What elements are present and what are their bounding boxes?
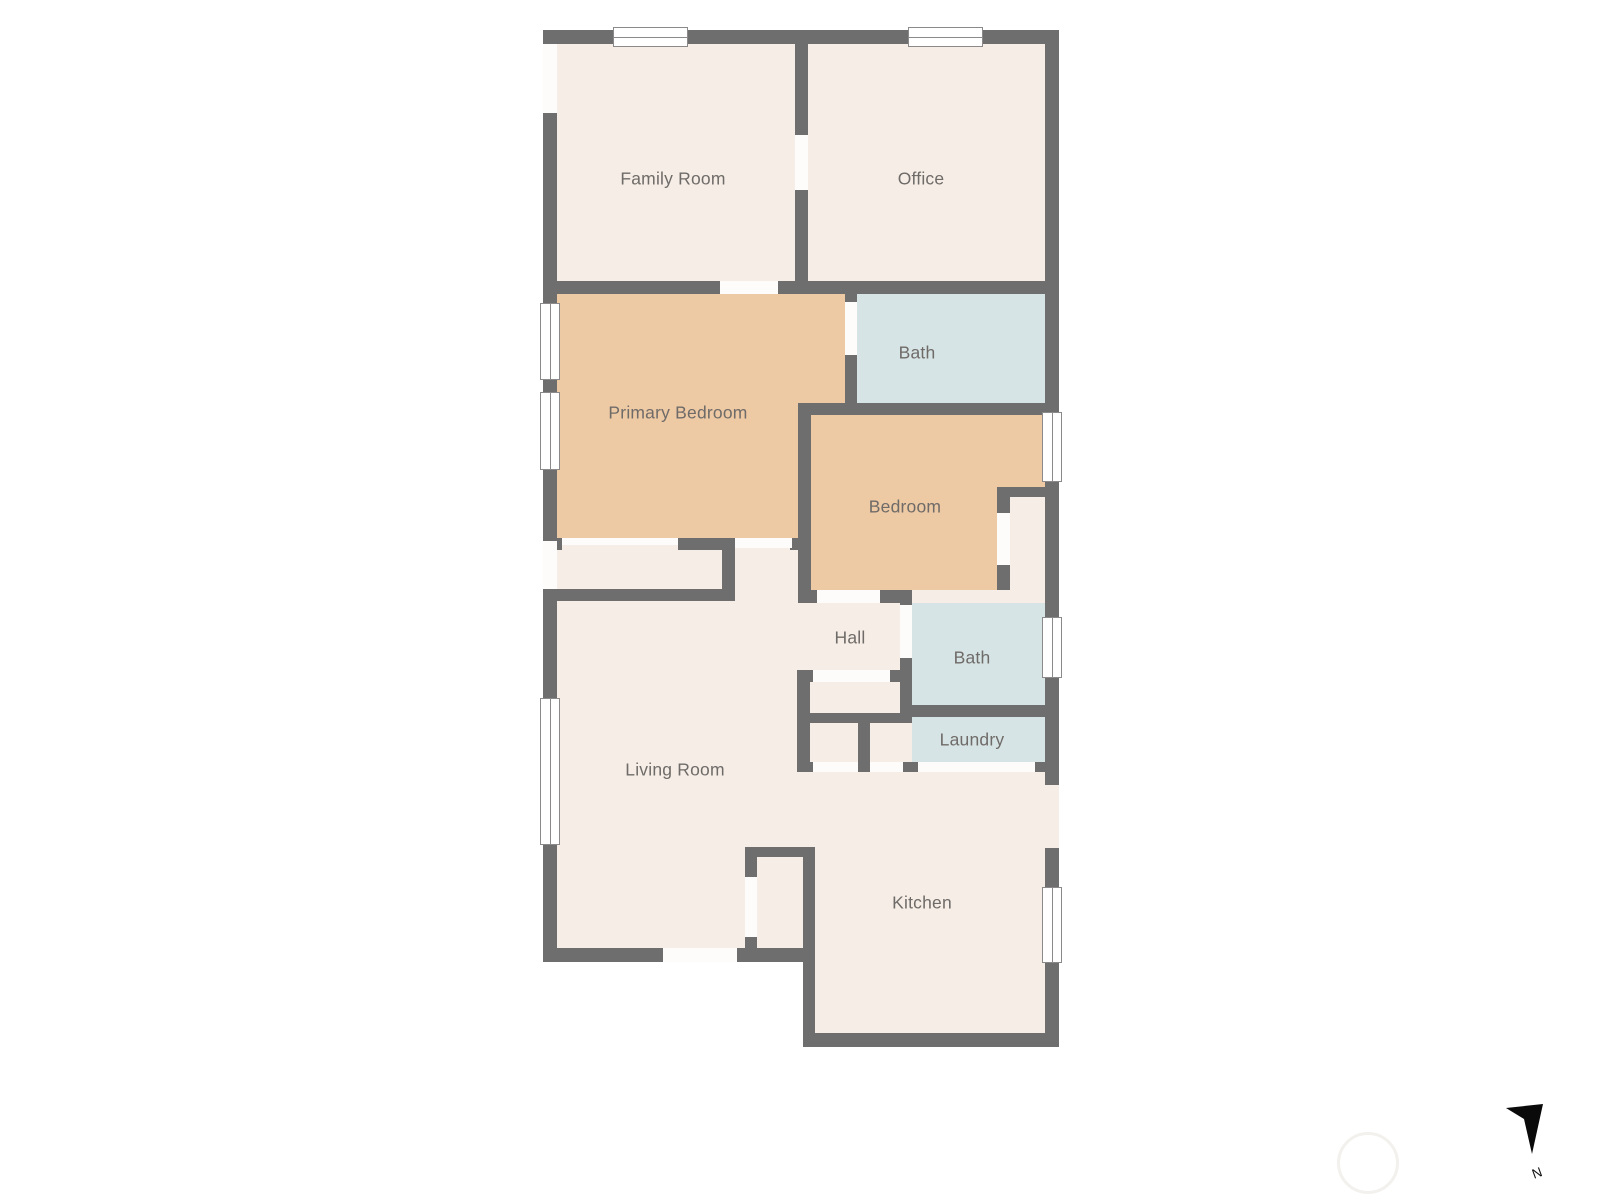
window-pane-line [614, 37, 687, 38]
room-label-bath-upper: Bath [899, 343, 936, 364]
room-label-bath-lower: Bath [954, 648, 991, 669]
door-opening [845, 302, 857, 355]
door-opening [813, 670, 890, 682]
window-pane-line [1052, 888, 1053, 962]
floor-plan: Family RoomOfficePrimary BedroomBathBedr… [0, 0, 1600, 1200]
door-opening [720, 281, 778, 294]
door-opening [795, 135, 808, 190]
window-pane-line [550, 699, 551, 844]
room-label-living-room: Living Room [625, 760, 724, 781]
room-label-hall: Hall [835, 628, 866, 649]
door-opening [663, 948, 737, 962]
window [1042, 887, 1062, 963]
wall [803, 847, 815, 1047]
door-opening [997, 513, 1010, 565]
watermark-circle [1337, 1132, 1399, 1194]
north-arrow-shape [1506, 1104, 1543, 1154]
door-opening [1045, 785, 1059, 848]
window [1042, 617, 1062, 678]
wall [900, 705, 1045, 717]
window-pane-line [550, 304, 551, 379]
floor-bath-upper [857, 294, 1045, 403]
wall [798, 403, 1045, 415]
window [908, 27, 983, 47]
room-label-primary-bedroom: Primary Bedroom [608, 403, 747, 424]
room-label-family-room: Family Room [620, 169, 725, 190]
door-opening [562, 538, 678, 545]
door-opening [543, 44, 557, 113]
window [540, 392, 560, 470]
window-pane-line [1052, 413, 1053, 481]
window [540, 303, 560, 380]
door-opening [735, 538, 792, 548]
door-opening [745, 877, 757, 937]
door-opening [813, 762, 858, 772]
window-pane-line [1052, 618, 1053, 677]
window [1042, 412, 1062, 482]
north-arrow-icon [1480, 1090, 1570, 1190]
wall [803, 1033, 1059, 1047]
room-label-office: Office [898, 169, 945, 190]
floor-plan-page: Family RoomOfficePrimary BedroomBathBedr… [0, 0, 1600, 1200]
wall [543, 589, 735, 601]
window-pane-line [909, 37, 982, 38]
wall [797, 713, 912, 723]
door-opening [543, 541, 557, 589]
room-label-bedroom: Bedroom [869, 497, 941, 518]
room-label-kitchen: Kitchen [892, 893, 952, 914]
window [613, 27, 688, 47]
room-label-laundry: Laundry [940, 730, 1005, 751]
door-opening [918, 762, 1035, 772]
wall [798, 403, 811, 590]
window-pane-line [550, 393, 551, 469]
door-opening [817, 590, 880, 603]
door-opening [870, 762, 903, 772]
door-opening [900, 605, 912, 658]
wall [543, 281, 1059, 294]
window [540, 698, 560, 845]
